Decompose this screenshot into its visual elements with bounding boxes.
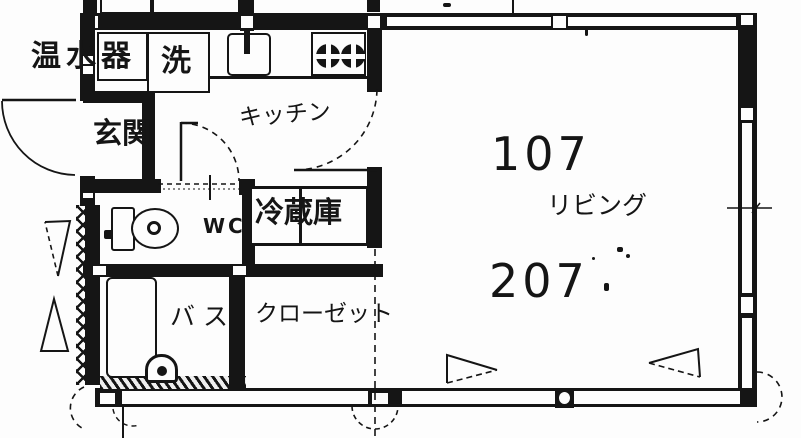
ink-speck [617, 247, 623, 252]
entrance-door-arc [2, 101, 75, 175]
water-heater-label: 温水器 [31, 42, 136, 72]
living-triangle-right-dash [447, 370, 497, 383]
ink-speck [604, 283, 609, 291]
direction-triangle-up [41, 299, 68, 351]
ink-speck [443, 3, 451, 7]
fridge-label: 冷蔵庫 [255, 198, 342, 227]
closet-label: クローゼット [255, 303, 393, 326]
dashed-arc [113, 409, 139, 426]
floor-plan: 温水器 洗 キッチン 玄関 WC 冷蔵庫 バス クローゼット リビング 107 … [0, 0, 801, 438]
washer-label: 洗 [161, 47, 191, 77]
wc-label: WC [203, 216, 246, 236]
unit-number-107: 107 [491, 131, 591, 177]
corridor-door-panel [181, 122, 198, 181]
corridor-door-arc [181, 123, 239, 181]
dashed-arc [70, 387, 84, 429]
living-label: リビング [547, 193, 647, 218]
dashed-arc [757, 372, 782, 422]
direction-triangle-down-dash [45, 222, 58, 276]
ink-speck [592, 257, 595, 260]
living-triangle-right [447, 355, 497, 383]
living-triangle-left-dash [649, 363, 700, 377]
ink-speck [585, 29, 588, 36]
direction-triangle-down [45, 221, 70, 276]
living-triangle-left [649, 349, 700, 377]
bath-label: バス [170, 304, 236, 329]
ink-speck [626, 254, 630, 258]
unit-number-207: 207 [489, 258, 589, 304]
entrance-label: 玄関 [93, 119, 151, 148]
ink-speck [104, 230, 113, 239]
